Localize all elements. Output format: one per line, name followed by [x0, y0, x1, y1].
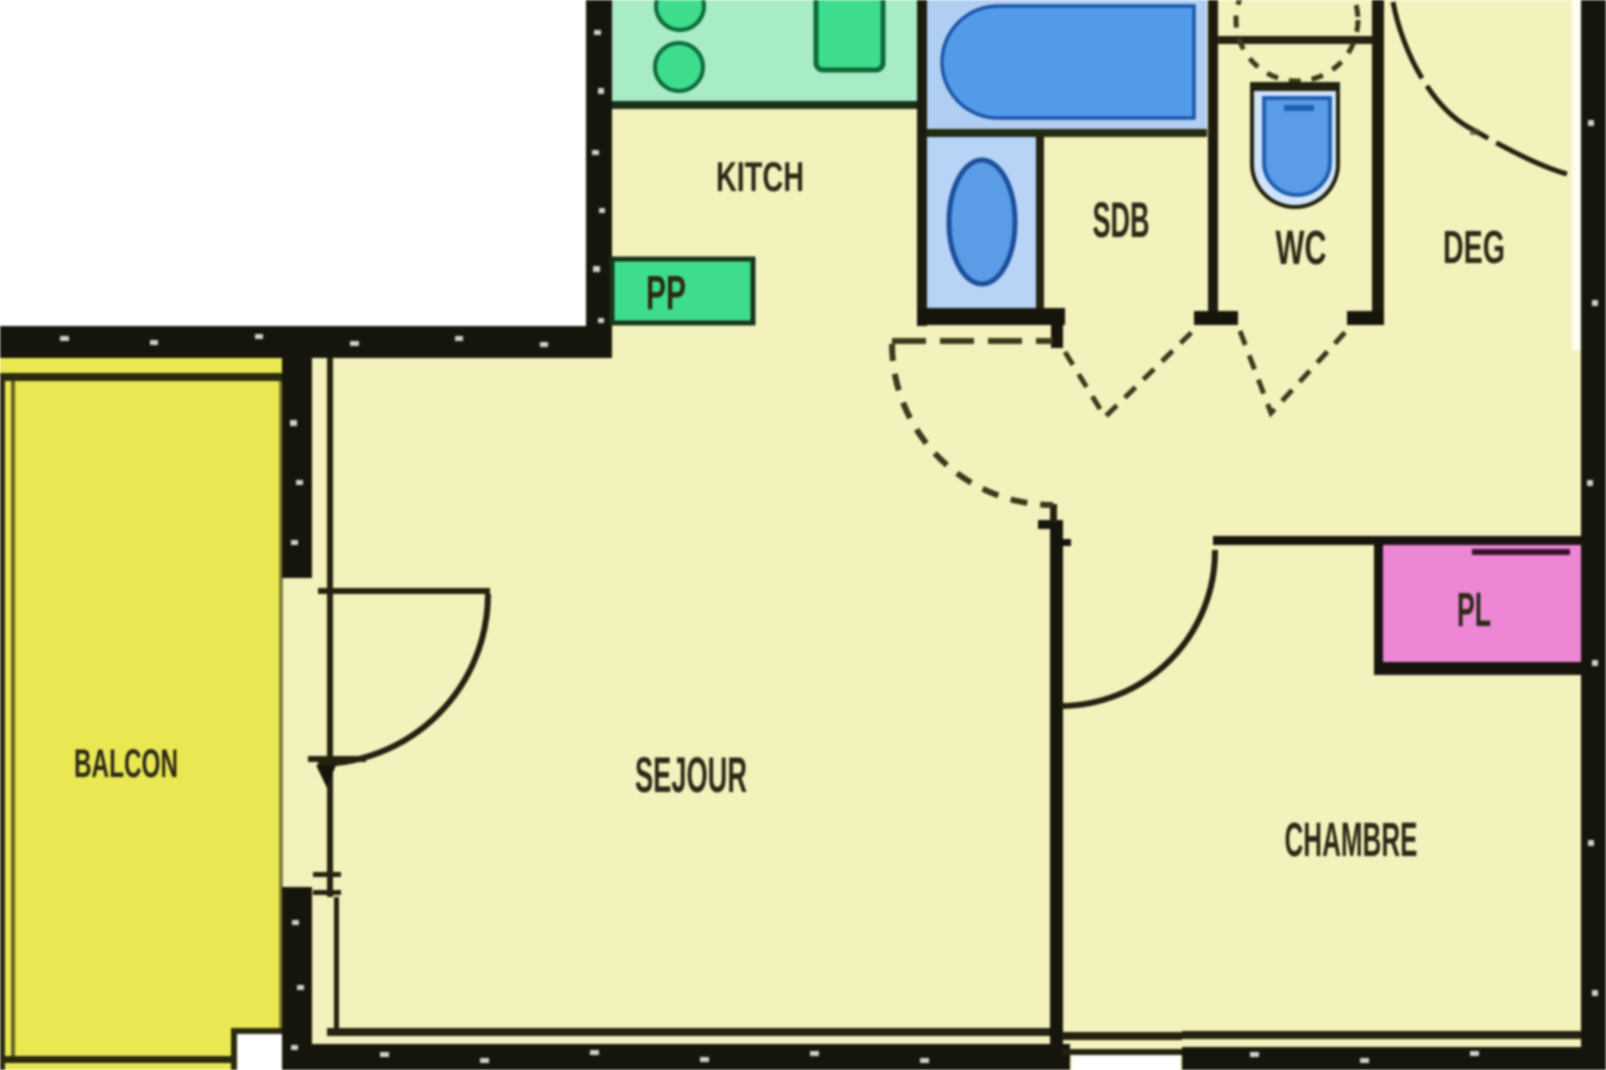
svg-text:DEG: DEG [1443, 221, 1505, 273]
svg-text:SEJOUR: SEJOUR [635, 747, 747, 803]
svg-text:KITCH: KITCH [716, 153, 804, 200]
svg-text:SDB: SDB [1093, 192, 1150, 248]
svg-text:CHAMBRE: CHAMBRE [1285, 814, 1418, 867]
svg-text:BALCON: BALCON [74, 742, 178, 786]
svg-text:PL: PL [1457, 584, 1491, 637]
svg-text:WC: WC [1276, 222, 1327, 275]
svg-text:PP: PP [646, 267, 686, 320]
